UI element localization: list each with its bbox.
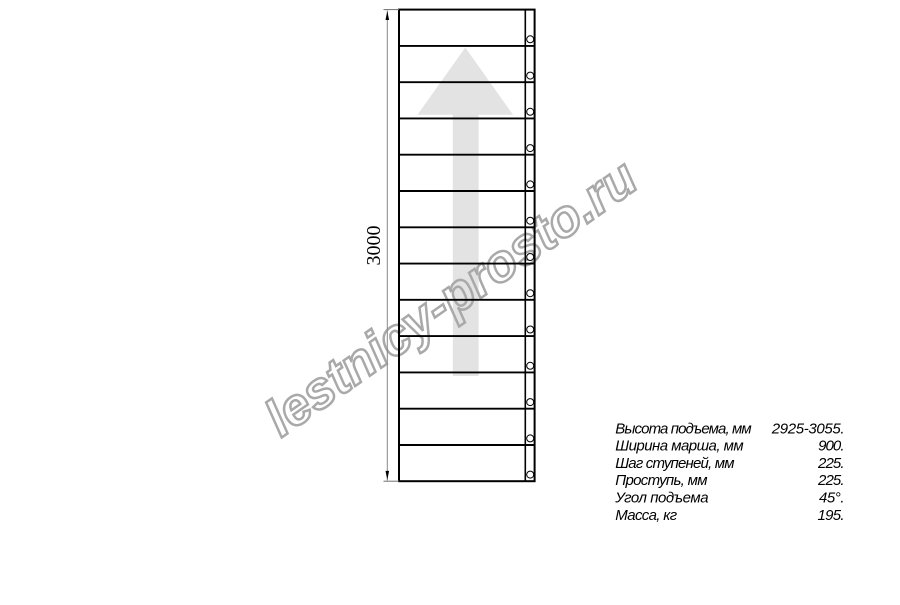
svg-text:195.: 195. <box>818 507 845 524</box>
svg-text:225.: 225. <box>817 472 845 489</box>
svg-text:225.: 225. <box>817 455 845 472</box>
svg-text:3000: 3000 <box>363 226 385 266</box>
svg-text:lestnicy-prosto.ru: lestnicy-prosto.ru <box>255 148 648 447</box>
svg-text:2925-3055.: 2925-3055. <box>771 420 845 437</box>
svg-text:Масса, кг: Масса, кг <box>615 507 677 524</box>
svg-text:Проступь, мм: Проступь, мм <box>615 472 707 489</box>
svg-text:900.: 900. <box>818 438 844 455</box>
svg-text:Шаг ступеней, мм: Шаг ступеней, мм <box>615 455 734 472</box>
svg-text:Угол подъема: Угол подъема <box>614 490 708 507</box>
svg-text:Ширина марша, мм: Ширина марша, мм <box>615 438 743 455</box>
svg-text:45°.: 45°. <box>819 490 845 507</box>
svg-text:Высота подъема, мм: Высота подъема, мм <box>615 420 751 437</box>
